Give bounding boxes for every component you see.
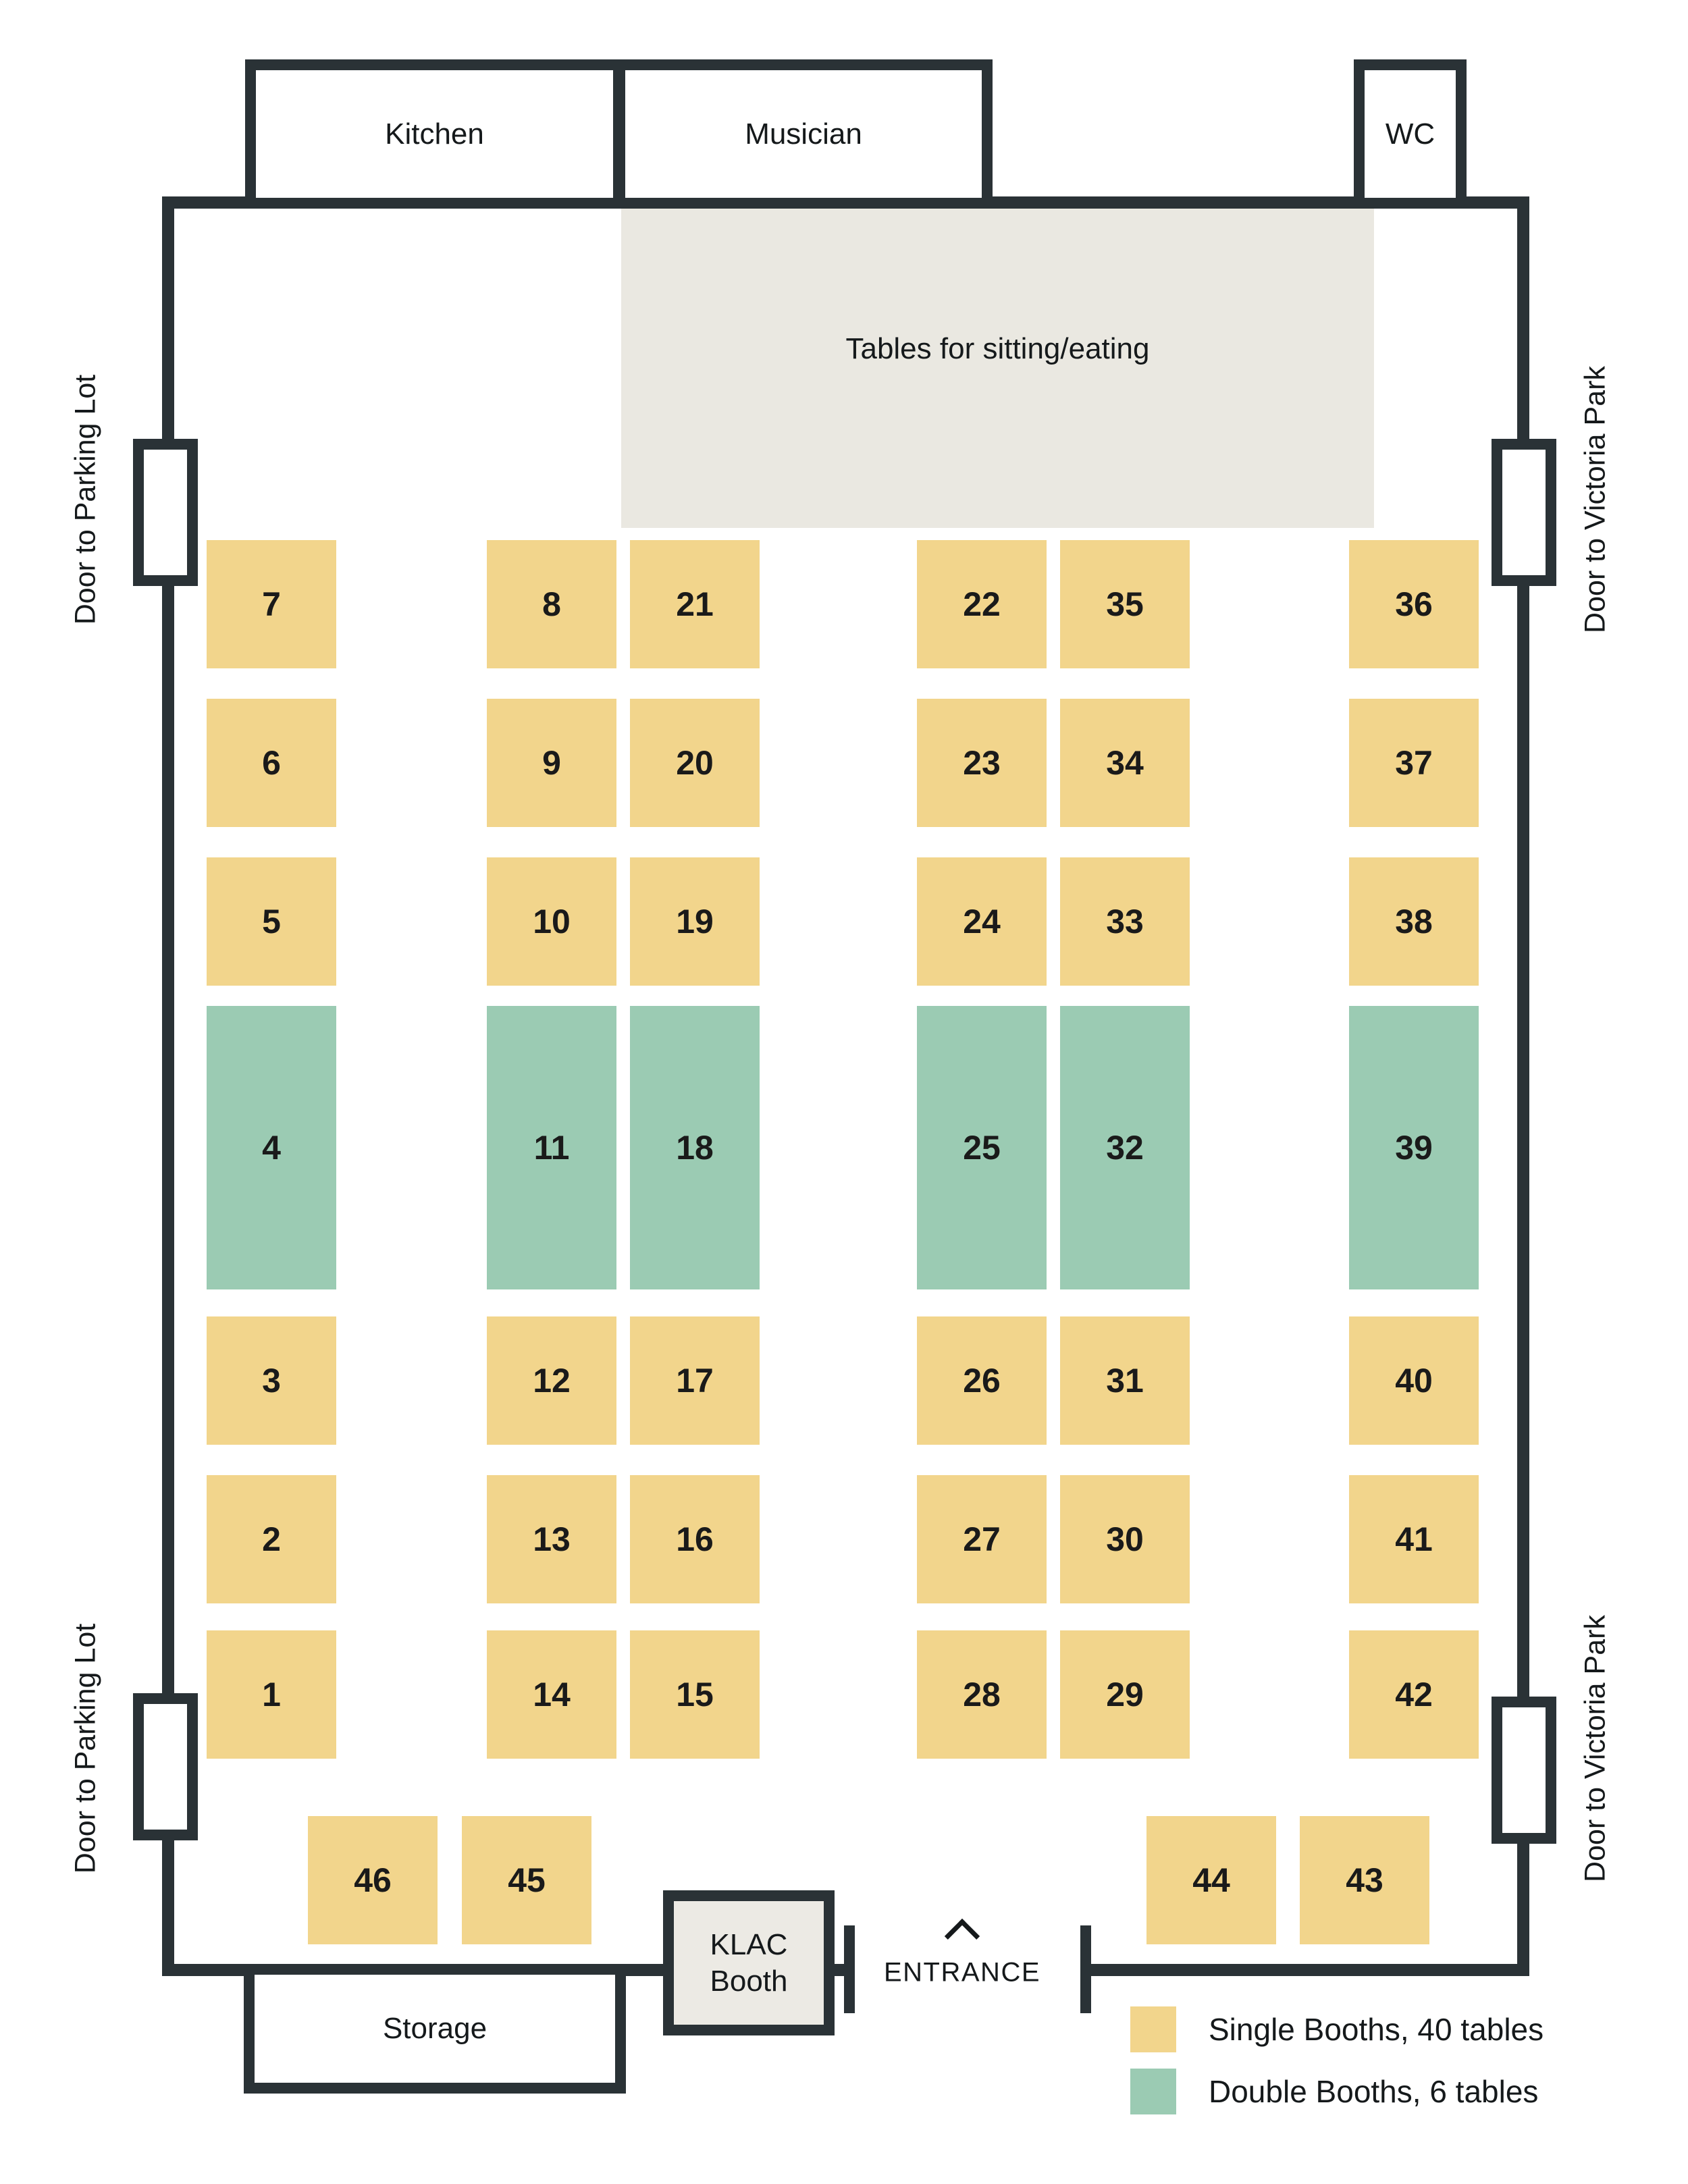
booth-number: 18 bbox=[676, 1128, 714, 1167]
booth-number: 16 bbox=[676, 1520, 714, 1559]
booth-number: 26 bbox=[963, 1361, 1001, 1400]
booth-number: 29 bbox=[1106, 1675, 1144, 1714]
booth-18: 18 bbox=[630, 1006, 760, 1289]
booth-number: 22 bbox=[963, 585, 1001, 624]
booth-8: 8 bbox=[487, 540, 616, 668]
door-label-victoria-park-lower: Door to Victoria Park bbox=[1579, 1615, 1612, 1882]
booth-number: 40 bbox=[1395, 1361, 1433, 1400]
booth-number: 7 bbox=[262, 585, 281, 624]
booth-number: 10 bbox=[533, 902, 571, 941]
wall-bottom-right bbox=[1091, 1964, 1529, 1976]
booth-number: 41 bbox=[1395, 1520, 1433, 1559]
door-victoria-park-upper bbox=[1492, 439, 1556, 586]
booth-26: 26 bbox=[917, 1316, 1047, 1445]
legend-item-double: Double Booths, 6 tables bbox=[1130, 2069, 1538, 2114]
musician-label: Musician bbox=[745, 116, 862, 153]
booth-33: 33 bbox=[1060, 857, 1190, 986]
booth-39: 39 bbox=[1349, 1006, 1479, 1289]
booth-3: 3 bbox=[207, 1316, 336, 1445]
booth-32: 32 bbox=[1060, 1006, 1190, 1289]
booth-36: 36 bbox=[1349, 540, 1479, 668]
kitchen-label: Kitchen bbox=[385, 116, 484, 153]
booth-15: 15 bbox=[630, 1630, 760, 1759]
booth-number: 32 bbox=[1106, 1128, 1144, 1167]
booth-number: 44 bbox=[1192, 1861, 1230, 1900]
wc-label: WC bbox=[1386, 116, 1435, 153]
booth-38: 38 bbox=[1349, 857, 1479, 986]
booth-number: 37 bbox=[1395, 743, 1433, 782]
booth-25: 25 bbox=[917, 1006, 1047, 1289]
booth-9: 9 bbox=[487, 699, 616, 827]
legend-label-single: Single Booths, 40 tables bbox=[1209, 2011, 1544, 2048]
wc-room: WC bbox=[1354, 59, 1467, 209]
door-label-parking-lot-upper: Door to Parking Lot bbox=[70, 375, 103, 624]
booth-number: 33 bbox=[1106, 902, 1144, 941]
booth-number: 6 bbox=[262, 743, 281, 782]
booth-1: 1 bbox=[207, 1630, 336, 1759]
floor-plan: Tables for sitting/eating Kitchen Musici… bbox=[0, 0, 1688, 2184]
booth-17: 17 bbox=[630, 1316, 760, 1445]
booth-number: 21 bbox=[676, 585, 714, 624]
booth-34: 34 bbox=[1060, 699, 1190, 827]
booth-19: 19 bbox=[630, 857, 760, 986]
booth-number: 14 bbox=[533, 1675, 571, 1714]
booth-7: 7 bbox=[207, 540, 336, 668]
booth-number: 4 bbox=[262, 1128, 281, 1167]
booth-23: 23 bbox=[917, 699, 1047, 827]
booth-2: 2 bbox=[207, 1475, 336, 1603]
entrance-label: ENTRANCE bbox=[884, 1958, 1040, 1988]
door-parking-lot-lower bbox=[133, 1693, 198, 1840]
booth-number: 36 bbox=[1395, 585, 1433, 624]
storage-room: Storage bbox=[244, 1964, 626, 2094]
booth-45: 45 bbox=[462, 1816, 591, 1944]
booth-22: 22 bbox=[917, 540, 1047, 668]
booth-40: 40 bbox=[1349, 1316, 1479, 1445]
booth-number: 42 bbox=[1395, 1675, 1433, 1714]
booth-number: 8 bbox=[542, 585, 561, 624]
booth-number: 31 bbox=[1106, 1361, 1144, 1400]
booth-43: 43 bbox=[1300, 1816, 1429, 1944]
booth-42: 42 bbox=[1349, 1630, 1479, 1759]
booth-number: 13 bbox=[533, 1520, 571, 1559]
booth-28: 28 bbox=[917, 1630, 1047, 1759]
booth-number: 17 bbox=[676, 1361, 714, 1400]
booth-number: 30 bbox=[1106, 1520, 1144, 1559]
booth-number: 34 bbox=[1106, 743, 1144, 782]
booth-4: 4 bbox=[207, 1006, 336, 1289]
booth-number: 27 bbox=[963, 1520, 1001, 1559]
booth-number: 46 bbox=[354, 1861, 392, 1900]
booth-29: 29 bbox=[1060, 1630, 1190, 1759]
booth-number: 39 bbox=[1395, 1128, 1433, 1167]
booth-16: 16 bbox=[630, 1475, 760, 1603]
kitchen-room: Kitchen bbox=[245, 59, 624, 209]
booth-6: 6 bbox=[207, 699, 336, 827]
booth-21: 21 bbox=[630, 540, 760, 668]
entrance-arrow-icon bbox=[945, 1919, 980, 1954]
booth-number: 2 bbox=[262, 1520, 281, 1559]
booth-5: 5 bbox=[207, 857, 336, 986]
booth-number: 12 bbox=[533, 1361, 571, 1400]
booth-number: 23 bbox=[963, 743, 1001, 782]
storage-label: Storage bbox=[383, 2010, 487, 2047]
booth-46: 46 bbox=[308, 1816, 438, 1944]
booth-number: 15 bbox=[676, 1675, 714, 1714]
klac-booth-label: KLAC Booth bbox=[688, 1927, 810, 1999]
double-booth-swatch-icon bbox=[1130, 2069, 1176, 2114]
legend-item-single: Single Booths, 40 tables bbox=[1130, 2006, 1544, 2052]
booth-30: 30 bbox=[1060, 1475, 1190, 1603]
single-booth-swatch-icon bbox=[1130, 2006, 1176, 2052]
booth-41: 41 bbox=[1349, 1475, 1479, 1603]
booth-13: 13 bbox=[487, 1475, 616, 1603]
sitting-area: Tables for sitting/eating bbox=[621, 209, 1374, 528]
klac-booth: KLAC Booth bbox=[663, 1890, 835, 2035]
booth-44: 44 bbox=[1146, 1816, 1276, 1944]
booth-number: 11 bbox=[534, 1128, 570, 1167]
booth-14: 14 bbox=[487, 1630, 616, 1759]
entrance-tick-left bbox=[844, 1925, 855, 2013]
booth-35: 35 bbox=[1060, 540, 1190, 668]
booth-24: 24 bbox=[917, 857, 1047, 986]
musician-room: Musician bbox=[614, 59, 993, 209]
booth-number: 3 bbox=[262, 1361, 281, 1400]
booth-number: 25 bbox=[963, 1128, 1001, 1167]
sitting-area-label: Tables for sitting/eating bbox=[621, 332, 1374, 366]
booth-11: 11 bbox=[487, 1006, 616, 1289]
door-parking-lot-upper bbox=[133, 439, 198, 586]
booth-31: 31 bbox=[1060, 1316, 1190, 1445]
booth-number: 5 bbox=[262, 902, 281, 941]
booth-number: 20 bbox=[676, 743, 714, 782]
entrance-tick-right bbox=[1080, 1925, 1091, 2013]
door-victoria-park-lower bbox=[1492, 1697, 1556, 1844]
booth-20: 20 bbox=[630, 699, 760, 827]
booth-37: 37 bbox=[1349, 699, 1479, 827]
booth-10: 10 bbox=[487, 857, 616, 986]
booth-number: 9 bbox=[542, 743, 561, 782]
door-label-parking-lot-lower: Door to Parking Lot bbox=[70, 1624, 103, 1873]
legend-label-double: Double Booths, 6 tables bbox=[1209, 2073, 1538, 2110]
door-label-victoria-park-upper: Door to Victoria Park bbox=[1579, 366, 1612, 633]
booth-number: 28 bbox=[963, 1675, 1001, 1714]
booth-12: 12 bbox=[487, 1316, 616, 1445]
booth-number: 19 bbox=[676, 902, 714, 941]
booth-27: 27 bbox=[917, 1475, 1047, 1603]
booth-number: 24 bbox=[963, 902, 1001, 941]
booth-number: 1 bbox=[262, 1675, 281, 1714]
booth-number: 43 bbox=[1346, 1861, 1383, 1900]
booth-number: 45 bbox=[508, 1861, 546, 1900]
booth-number: 38 bbox=[1395, 902, 1433, 941]
booth-number: 35 bbox=[1106, 585, 1144, 624]
